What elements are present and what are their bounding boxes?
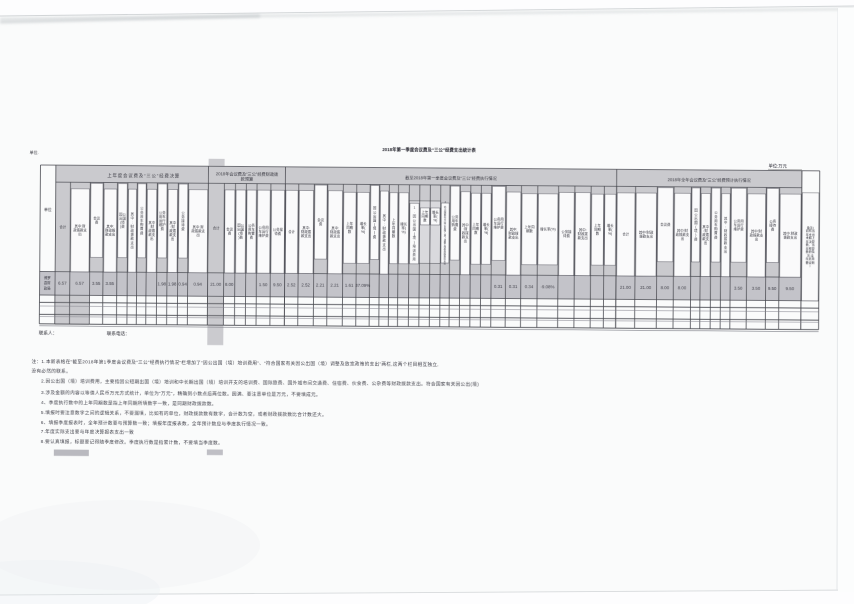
svg-text:2.52: 2.52 — [301, 283, 310, 288]
svg-text:2.21: 2.21 — [330, 283, 339, 288]
svg-text:款支出: 款支出 — [330, 233, 341, 238]
svg-text:): ) — [810, 264, 811, 268]
svg-text:政局: 政局 — [44, 286, 51, 291]
svg-text:8.00: 8.00 — [225, 282, 234, 287]
svg-text:8.00: 8.00 — [678, 285, 687, 290]
svg-text:0.94: 0.94 — [193, 282, 202, 287]
svg-text:%): %) — [361, 230, 365, 234]
svg-text:9.50: 9.50 — [273, 282, 282, 287]
svg-text:出: 出 — [413, 222, 416, 227]
svg-text:合计: 合计 — [59, 224, 66, 229]
svg-text:款支出: 款支出 — [105, 232, 116, 237]
svg-text:%): %) — [484, 231, 488, 235]
svg-text:0.31: 0.31 — [509, 284, 518, 289]
svg-text:1.98: 1.98 — [168, 282, 177, 287]
svg-text:增长率(%): 增长率(%) — [540, 226, 555, 231]
svg-text:会议费: 会议费 — [660, 222, 671, 227]
svg-text:款支出: 款支出 — [301, 233, 312, 238]
svg-text:3.55: 3.55 — [106, 281, 115, 286]
svg-text:)费: )费 — [120, 224, 125, 229]
svg-text:拨款支出: 拨款支出 — [783, 235, 797, 240]
svg-text:3.50: 3.50 — [752, 286, 761, 291]
svg-text:9.50: 9.50 — [786, 286, 795, 291]
svg-text:维护费: 维护费 — [258, 233, 269, 238]
svg-text:8.00: 8.00 — [661, 285, 670, 290]
svg-text:国: 国 — [413, 226, 416, 231]
svg-text:1.50: 1.50 — [259, 282, 268, 287]
svg-text:%): %) — [608, 232, 612, 236]
svg-text:款支出: 款支出 — [508, 235, 519, 240]
svg-text:6.57: 6.57 — [58, 281, 67, 286]
svg-text:拨款支出: 拨款支出 — [639, 233, 653, 238]
svg-text:)费: )费 — [238, 235, 243, 240]
svg-text:维护费: 维护费 — [494, 225, 505, 230]
svg-text:1.61: 1.61 — [345, 283, 354, 288]
svg-text:2.52: 2.52 — [287, 283, 296, 288]
svg-text:-9.08%: -9.08% — [541, 284, 555, 289]
svg-text:%): %) — [433, 219, 437, 223]
svg-text:1.98: 1.98 — [158, 282, 167, 287]
svg-text:%): %) — [402, 230, 406, 234]
svg-text:单位.: 单位. — [30, 149, 39, 155]
svg-text:0.34: 0.34 — [525, 284, 534, 289]
svg-text:合计: 合计 — [622, 231, 629, 236]
svg-text:2.21: 2.21 — [316, 283, 325, 288]
svg-text:3.50: 3.50 — [734, 286, 743, 291]
svg-text:.: . — [414, 210, 415, 214]
svg-text:21.00: 21.00 — [620, 285, 632, 290]
svg-text:博罗: 博罗 — [44, 275, 51, 280]
svg-text:维护费: 维护费 — [734, 226, 745, 231]
svg-text:0.31: 0.31 — [494, 284, 503, 289]
svg-text:6.57: 6.57 — [75, 281, 84, 286]
svg-text:21.00: 21.00 — [640, 285, 652, 290]
svg-text:待费: 待费 — [274, 231, 281, 236]
svg-text:0.94: 0.94 — [178, 282, 187, 287]
svg-text:用: 用 — [412, 257, 415, 261]
svg-text:37.09%: 37.09% — [355, 283, 370, 288]
svg-text:单位: 单位 — [44, 207, 52, 212]
svg-text:期数: 期数 — [526, 228, 533, 233]
svg-text:21.00: 21.00 — [210, 282, 222, 287]
svg-text:9.50: 9.50 — [768, 286, 777, 291]
svg-text:合计: 合计 — [213, 225, 220, 230]
svg-text:待费: 待费 — [563, 233, 570, 238]
svg-text:款支出: 款支出 — [578, 235, 589, 240]
svg-text:县财: 县财 — [44, 280, 51, 285]
svg-text:合计: 合计 — [288, 229, 295, 234]
svg-text:3.55: 3.55 — [92, 281, 101, 286]
